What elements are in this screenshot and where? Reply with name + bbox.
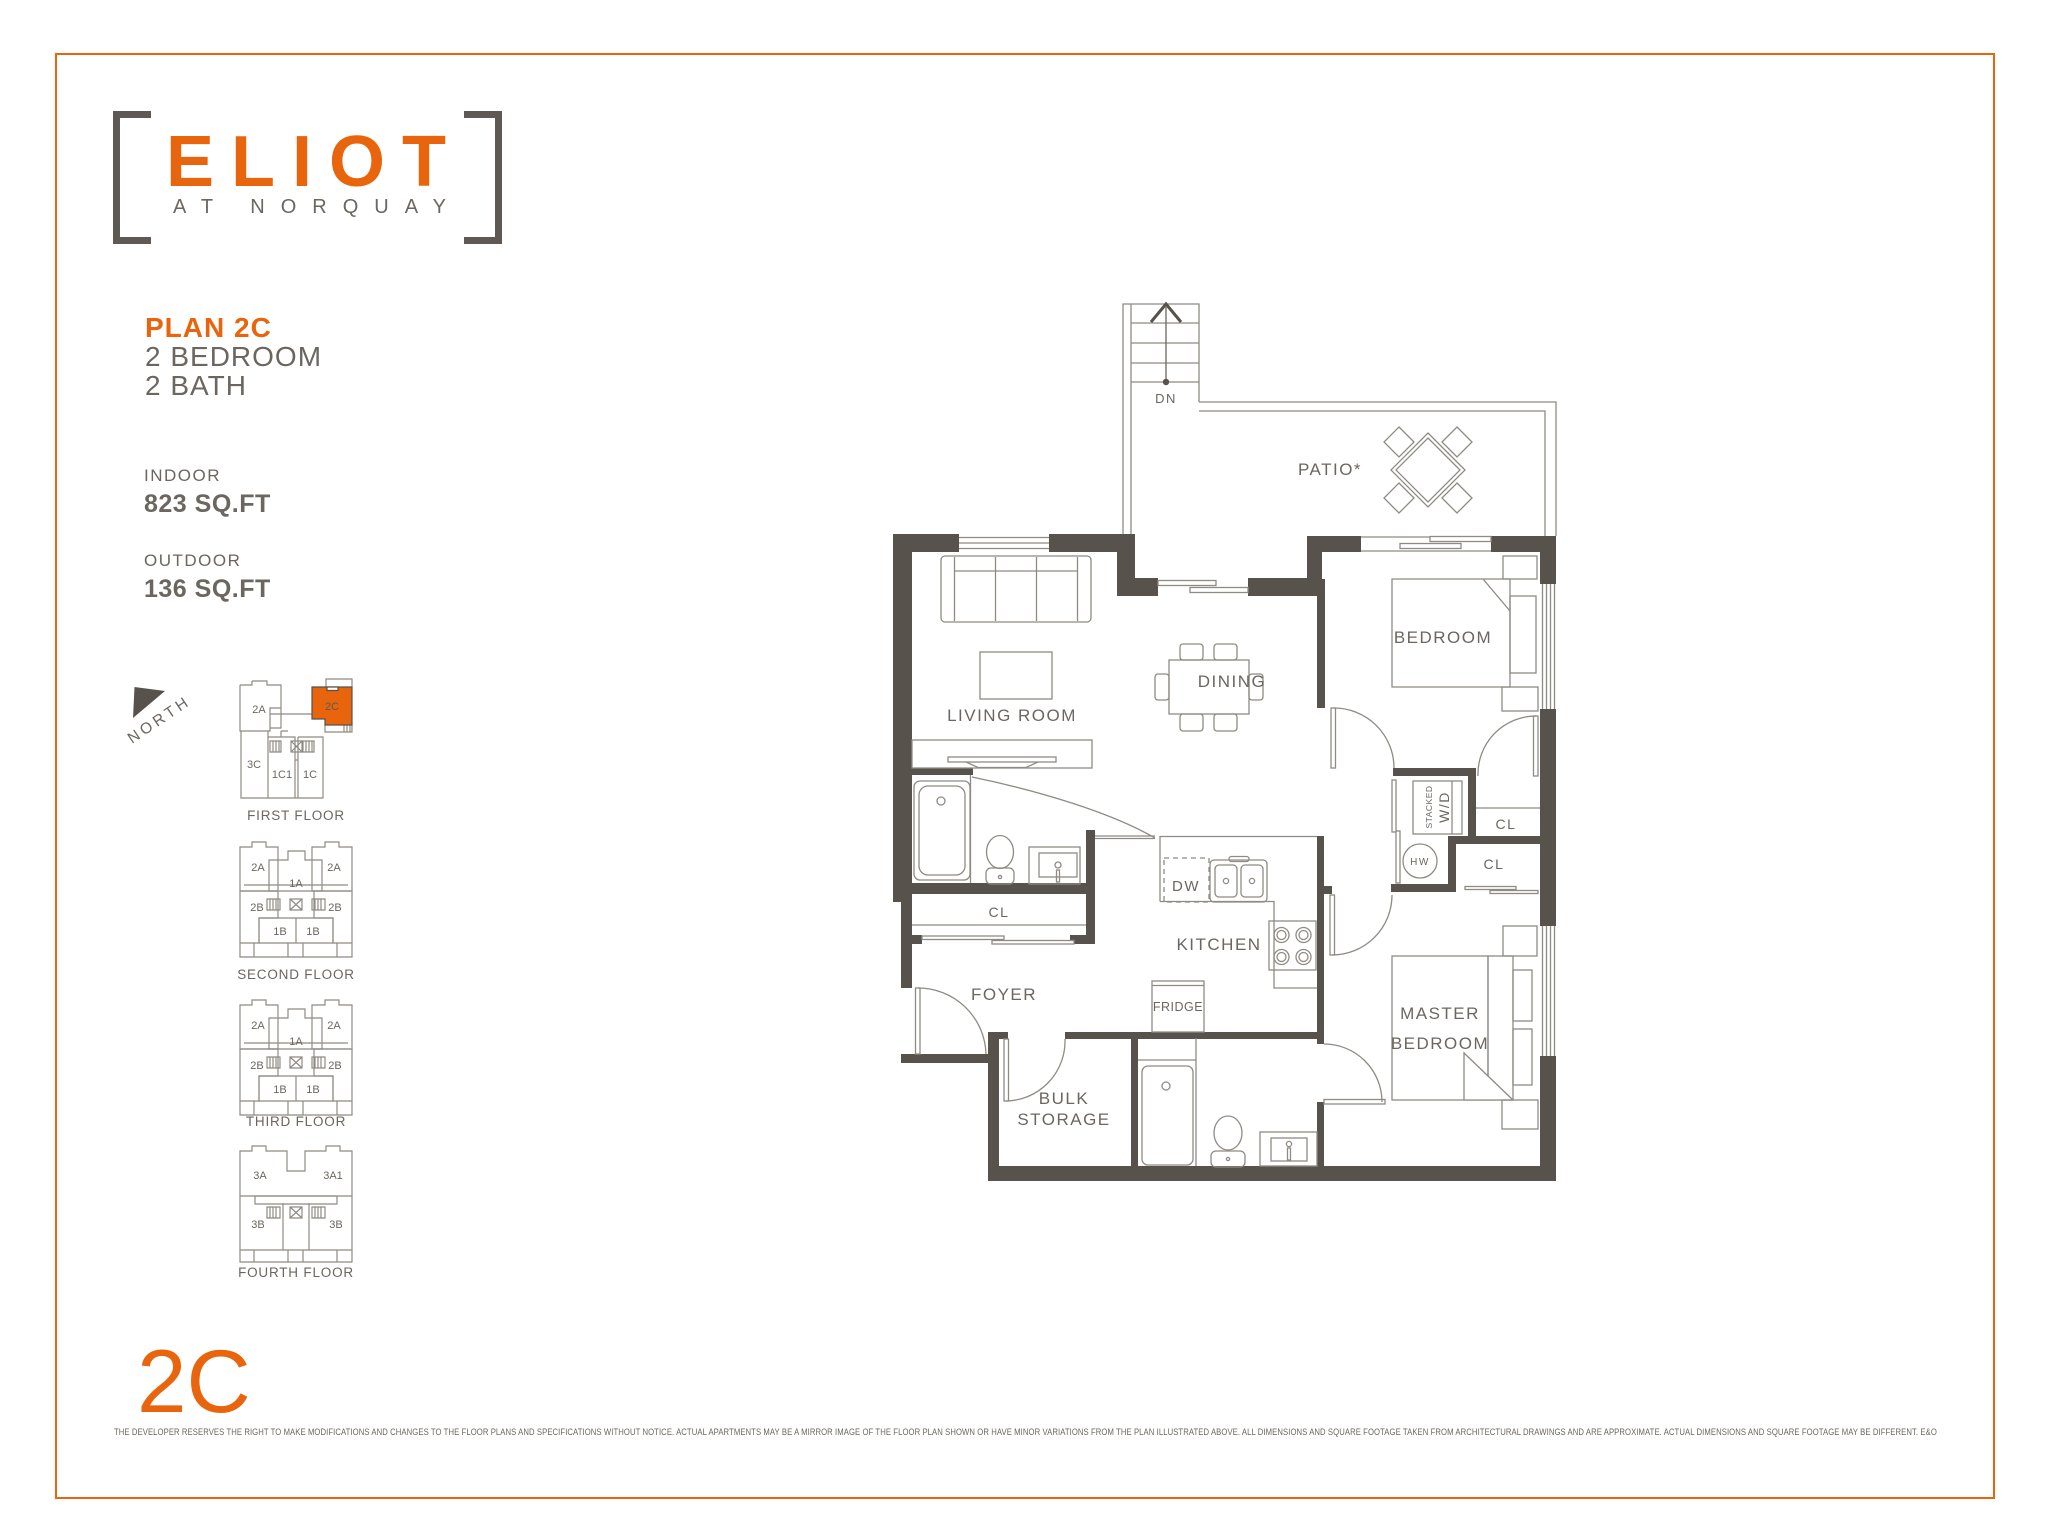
svg-text:FOYER: FOYER — [971, 985, 1037, 1004]
svg-text:BULK: BULK — [1039, 1089, 1089, 1108]
svg-text:3A: 3A — [253, 1170, 267, 1182]
svg-text:HW: HW — [1410, 857, 1430, 868]
svg-text:CL: CL — [989, 904, 1010, 920]
svg-text:3A1: 3A1 — [323, 1170, 343, 1182]
svg-text:1B: 1B — [273, 1084, 286, 1096]
svg-text:2A: 2A — [251, 862, 265, 874]
svg-text:STORAGE: STORAGE — [1017, 1110, 1110, 1129]
svg-text:1A: 1A — [289, 1036, 303, 1048]
svg-text:2C: 2C — [325, 701, 339, 713]
svg-text:SECOND FLOOR: SECOND FLOOR — [237, 967, 355, 982]
svg-text:2B: 2B — [328, 1060, 341, 1072]
svg-text:BEDROOM: BEDROOM — [1394, 628, 1492, 647]
svg-text:2A: 2A — [327, 1020, 341, 1032]
svg-text:2A: 2A — [251, 1020, 265, 1032]
svg-text:2A: 2A — [252, 704, 266, 716]
svg-text:CL: CL — [1484, 856, 1505, 872]
svg-text:2B: 2B — [250, 902, 263, 914]
svg-text:FOURTH FLOOR: FOURTH FLOOR — [238, 1265, 354, 1280]
svg-text:ELIOT: ELIOT — [166, 122, 463, 202]
svg-text:3C: 3C — [247, 759, 261, 771]
svg-text:2B: 2B — [250, 1060, 263, 1072]
svg-text:1A: 1A — [289, 878, 303, 890]
svg-text:KITCHEN: KITCHEN — [1176, 935, 1261, 954]
svg-text:1B: 1B — [273, 926, 286, 938]
svg-text:W/D: W/D — [1436, 791, 1452, 823]
svg-text:3B: 3B — [251, 1219, 264, 1231]
svg-text:FRIDGE: FRIDGE — [1153, 1000, 1203, 1014]
svg-text:STACKED: STACKED — [1424, 785, 1434, 828]
svg-text:DINING: DINING — [1198, 672, 1267, 691]
svg-text:1B: 1B — [306, 926, 319, 938]
svg-text:3B: 3B — [329, 1219, 342, 1231]
svg-text:1C: 1C — [303, 769, 317, 781]
svg-text:THIRD FLOOR: THIRD FLOOR — [246, 1114, 346, 1129]
svg-text:AT NORQUAY: AT NORQUAY — [173, 196, 462, 218]
svg-text:BEDROOM: BEDROOM — [1391, 1034, 1489, 1053]
svg-text:LIVING ROOM: LIVING ROOM — [947, 706, 1077, 725]
svg-text:2A: 2A — [327, 862, 341, 874]
svg-text:DW: DW — [1172, 878, 1200, 895]
svg-text:PATIO*: PATIO* — [1298, 460, 1362, 479]
svg-text:2B: 2B — [328, 902, 341, 914]
svg-text:1C1: 1C1 — [272, 769, 292, 781]
svg-text:DN: DN — [1155, 391, 1177, 406]
svg-text:FIRST FLOOR: FIRST FLOOR — [247, 808, 345, 823]
svg-text:1B: 1B — [306, 1084, 319, 1096]
svg-text:CL: CL — [1496, 816, 1517, 832]
svg-text:MASTER: MASTER — [1400, 1004, 1480, 1023]
